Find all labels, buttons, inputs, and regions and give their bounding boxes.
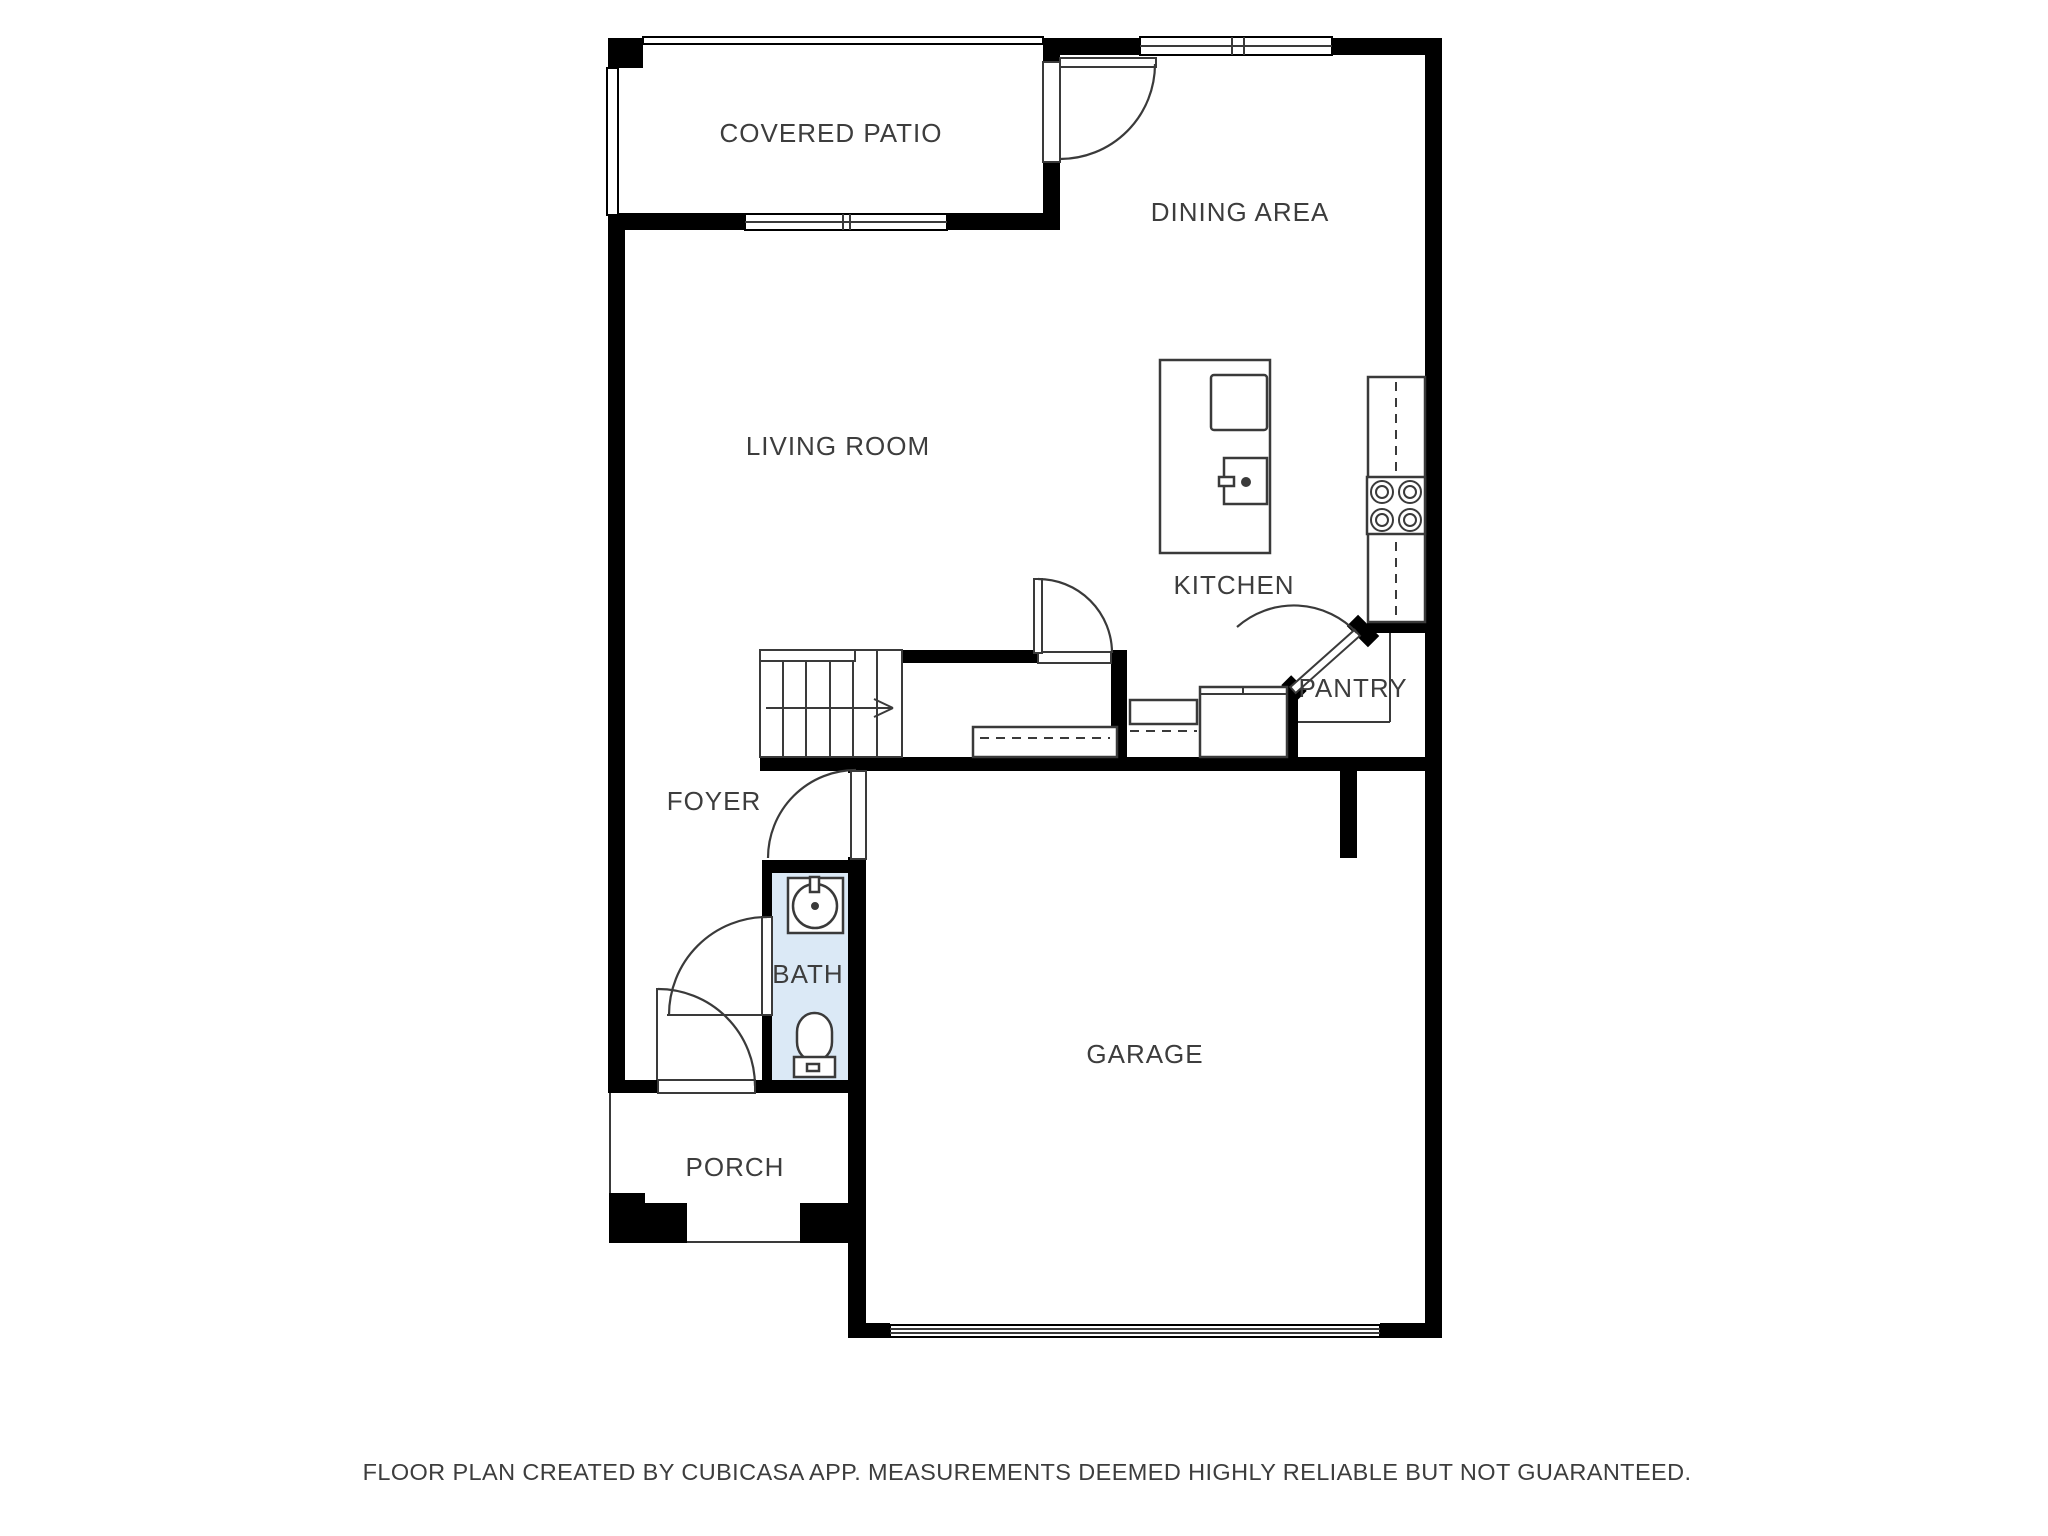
dining-window xyxy=(1140,37,1332,55)
island-sink xyxy=(1211,375,1267,430)
floor-plan-canvas: COVERED PATIO DINING AREA LIVING ROOM KI… xyxy=(0,0,2048,1536)
wall-bath-left-lower xyxy=(762,1015,772,1082)
kitchen-island xyxy=(1160,360,1270,553)
wall-foyer-bottom-left xyxy=(608,1080,659,1093)
wall-left xyxy=(608,213,625,1093)
door-foyer-garage xyxy=(768,770,866,859)
room-label-foyer: FOYER xyxy=(667,786,762,816)
porch-step-left-lower xyxy=(645,1203,687,1243)
stairs-landing xyxy=(760,650,855,661)
room-label-dining-area: DINING AREA xyxy=(1151,197,1330,227)
garage-door xyxy=(890,1325,1380,1337)
wall-garage-door-right-cap xyxy=(1380,1323,1442,1338)
room-label-porch: PORCH xyxy=(686,1152,785,1182)
wall-pantry-left xyxy=(1287,688,1298,771)
door-bath xyxy=(667,917,772,1015)
toilet xyxy=(794,1013,835,1077)
door-front xyxy=(657,988,755,1093)
porch-step-left-upper xyxy=(609,1193,645,1243)
hall-counter xyxy=(973,727,1117,757)
room-label-pantry: PANTRY xyxy=(1298,673,1407,703)
footer-disclaimer: FLOOR PLAN CREATED BY CUBICASA APP. MEAS… xyxy=(363,1459,1692,1485)
patio-open-edge-top xyxy=(643,37,1043,44)
patio-open-edge-left xyxy=(607,68,618,215)
wall-patio-corner xyxy=(608,38,643,68)
room-label-kitchen: KITCHEN xyxy=(1173,570,1294,600)
wall-patio-bottom-left xyxy=(608,213,754,230)
wall-patio-dining-top xyxy=(1043,38,1060,64)
room-label-bath: BATH xyxy=(772,959,843,989)
floor-plan-page: COVERED PATIO DINING AREA LIVING ROOM KI… xyxy=(0,0,2048,1536)
porch-step-right xyxy=(800,1203,850,1243)
patio-sliding-door xyxy=(745,214,947,230)
bath-sink xyxy=(788,877,843,933)
refrigerator xyxy=(1200,687,1287,757)
wall-bath-left-upper xyxy=(762,873,772,923)
wall-bath-top xyxy=(762,860,851,873)
room-label-living-room: LIVING ROOM xyxy=(746,431,930,461)
wall-top-left-of-window xyxy=(1060,38,1140,55)
room-labels: COVERED PATIO DINING AREA LIVING ROOM KI… xyxy=(363,118,1692,1485)
stairs xyxy=(760,650,902,757)
stove-cooktop xyxy=(1367,477,1425,534)
wall-garage-left xyxy=(848,857,866,1338)
wall-garage-door-left-cap xyxy=(850,1323,890,1338)
wall-right xyxy=(1425,38,1442,1338)
wall-garage-stub xyxy=(1340,771,1357,858)
kitchen-back-counter xyxy=(1130,687,1287,757)
island-dishwasher xyxy=(1219,458,1267,504)
door-patio-dining xyxy=(1043,58,1156,162)
kitchen-counter-right xyxy=(1367,377,1425,622)
door-hall-kitchen xyxy=(1034,579,1112,663)
room-label-covered-patio: COVERED PATIO xyxy=(720,118,943,148)
wall-patio-bottom-right xyxy=(946,213,1060,230)
room-label-garage: GARAGE xyxy=(1086,1039,1203,1069)
